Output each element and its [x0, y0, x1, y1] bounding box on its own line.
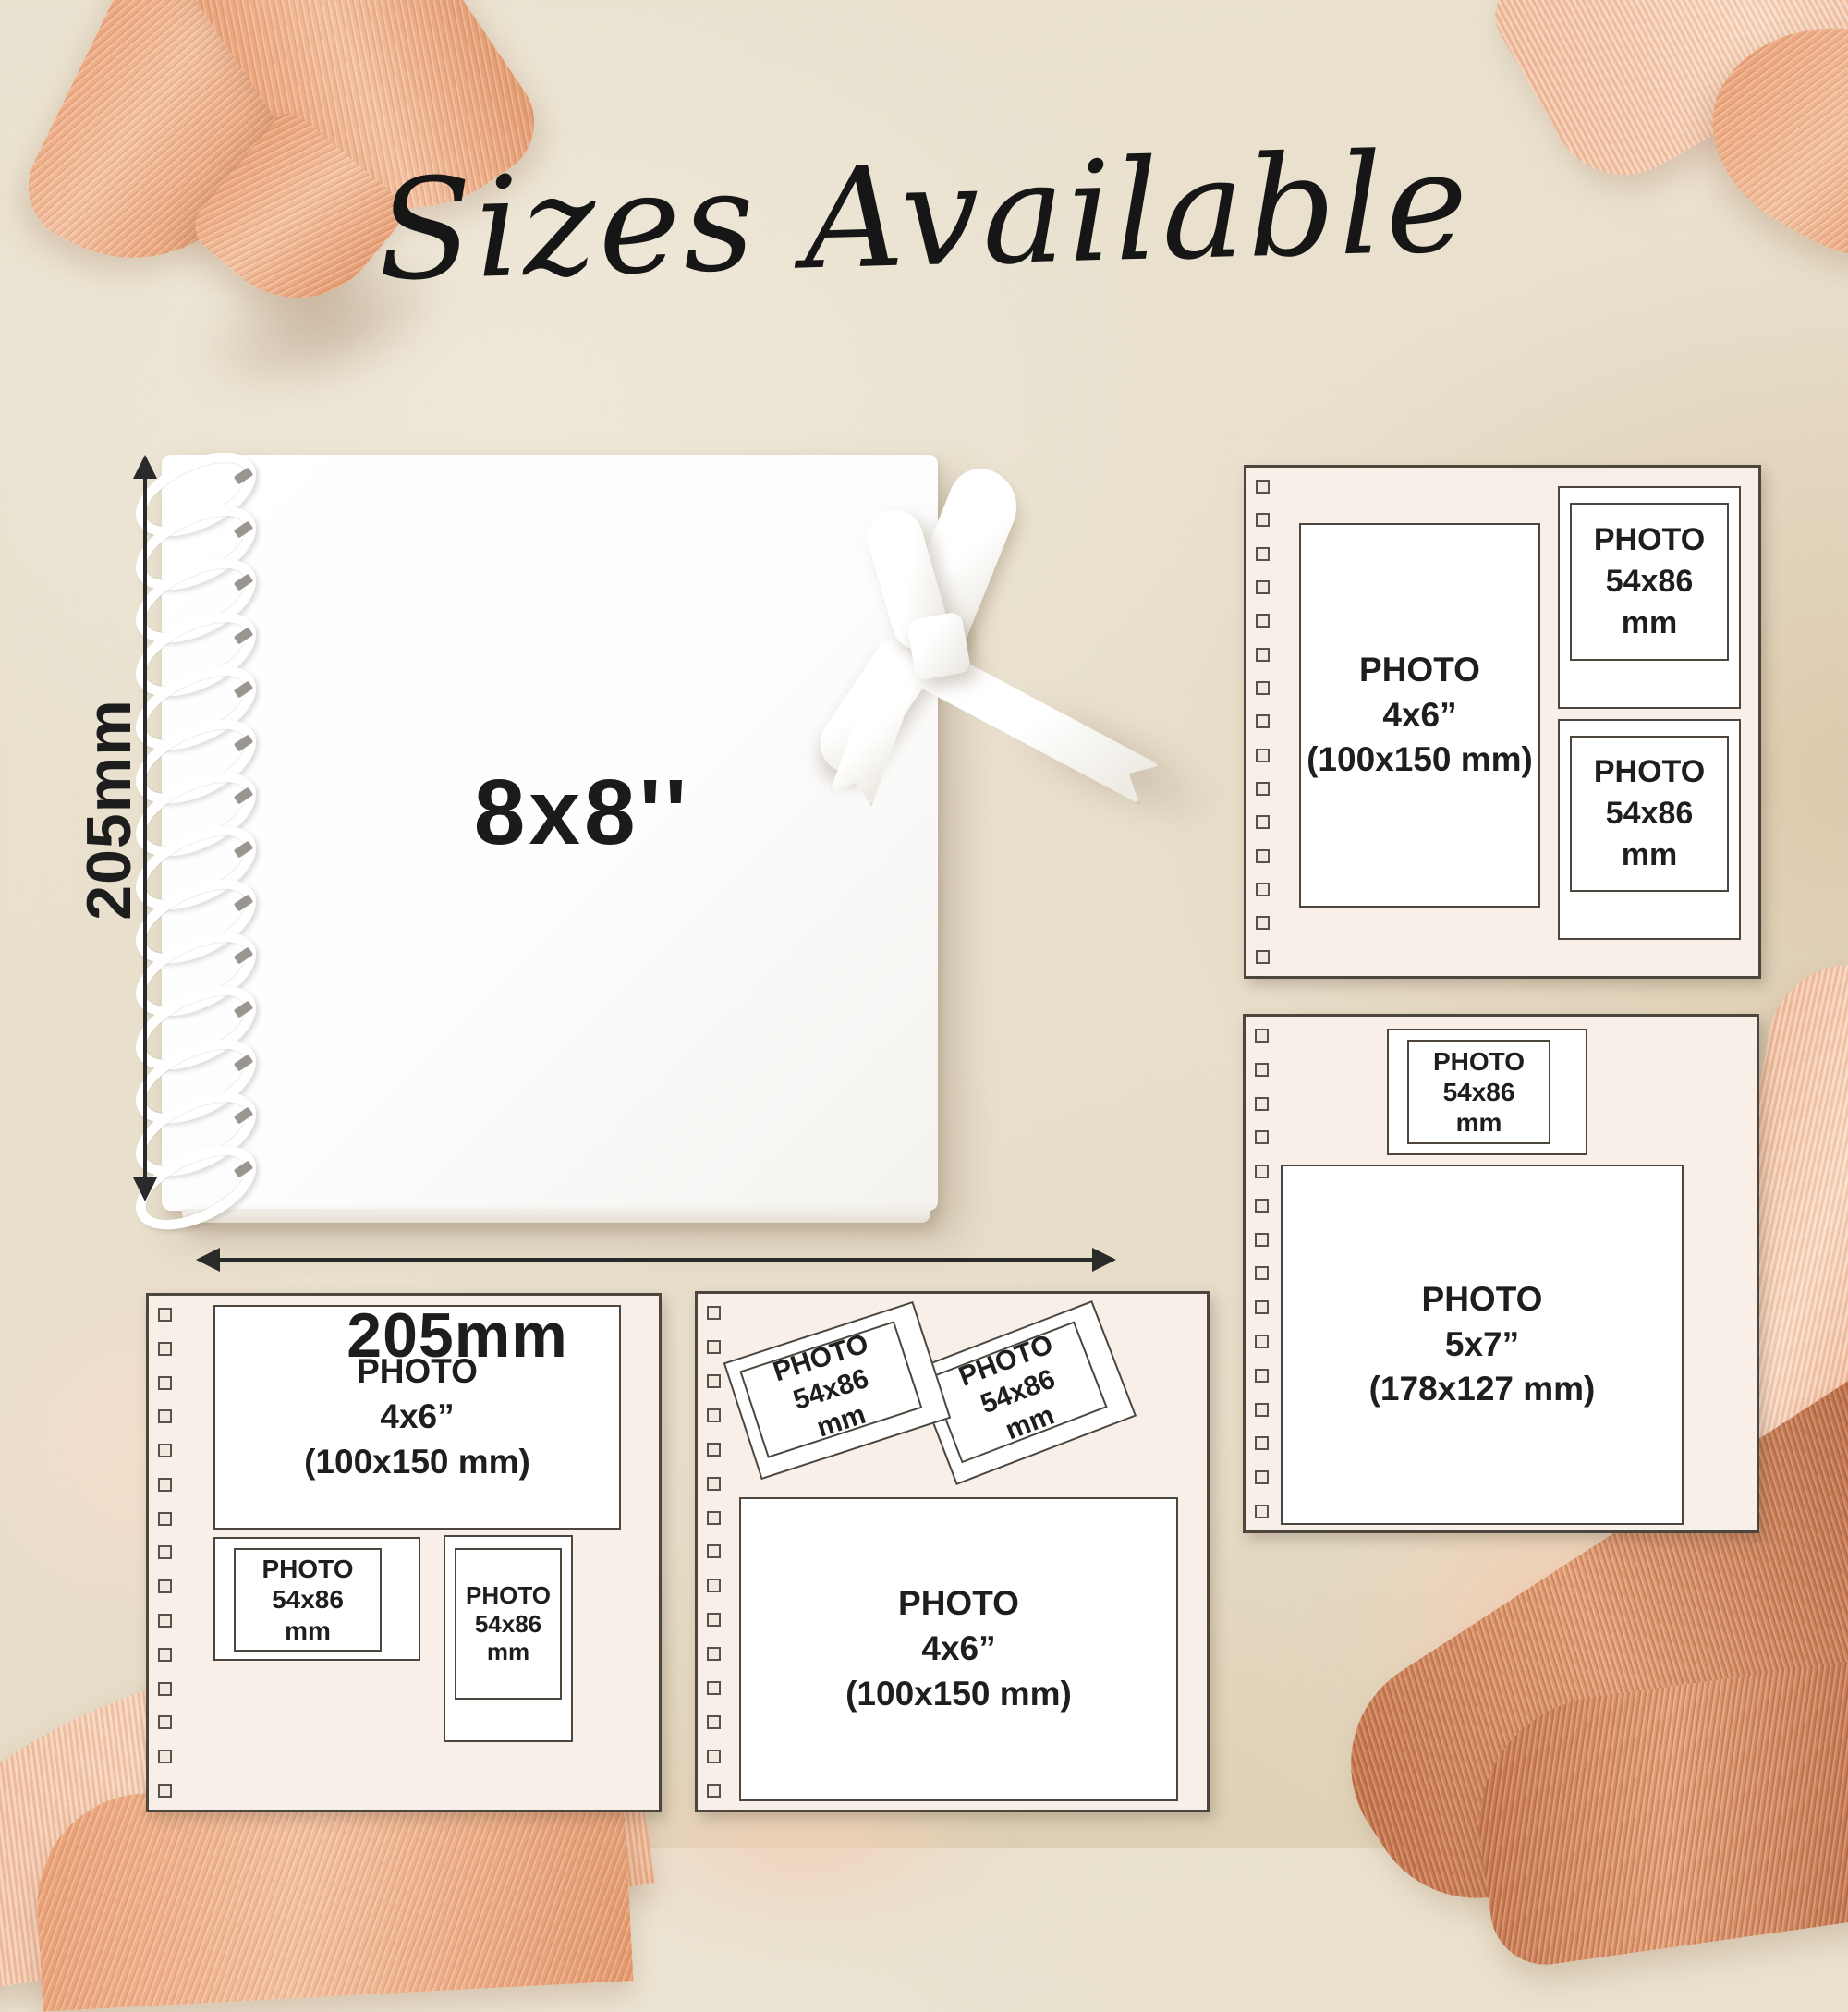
album-page-top-right: PHOTO 4x6” (100x150 mm) PHOTO 54x86 mm P…: [1244, 465, 1761, 979]
punch-hole: [158, 1614, 172, 1628]
punch-hole: [707, 1374, 721, 1388]
photo-slot-label: PHOTO 54x86 mm: [1594, 751, 1705, 876]
photo-slot-inner-frame: PHOTO 54x86 mm: [1407, 1040, 1550, 1144]
punch-hole: [707, 1715, 721, 1729]
punch-hole: [707, 1340, 721, 1354]
punch-hole: [1255, 1130, 1269, 1144]
punch-hole: [707, 1544, 721, 1558]
punch-hole: [1255, 1266, 1269, 1280]
punch-hole: [1256, 580, 1270, 594]
photo-slot-54x86: PHOTO 54x86 mm: [1558, 486, 1741, 709]
punch-hole: [1256, 883, 1270, 896]
album-page-bottom-left: PHOTO 4x6” (100x150 mm) PHOTO 54x86 mm P…: [146, 1293, 662, 1812]
punch-hole: [1256, 782, 1270, 796]
punch-hole: [158, 1579, 172, 1593]
punch-hole: [707, 1306, 721, 1320]
arrowhead-right-icon: [1092, 1248, 1116, 1272]
punch-hole: [1255, 1300, 1269, 1314]
punch-hole: [1255, 1165, 1269, 1178]
punch-hole: [1256, 480, 1270, 494]
punch-hole: [1256, 749, 1270, 762]
punch-hole: [707, 1511, 721, 1525]
punch-hole: [158, 1682, 172, 1696]
photo-slot-54x86: PHOTO 54x86 mm: [444, 1535, 573, 1742]
arrowhead-left-icon: [196, 1248, 220, 1272]
photo-slot-label: PHOTO 54x86 mm: [261, 1554, 353, 1645]
arrowhead-up-icon: [133, 455, 157, 479]
punch-hole: [158, 1342, 172, 1356]
punch-hole: [158, 1784, 172, 1798]
ribbon-tail-shadow: [941, 641, 1276, 884]
punch-hole: [1255, 1505, 1269, 1518]
photo-slot-inner-frame: PHOTO 54x86 mm: [455, 1548, 562, 1700]
punch-hole: [158, 1409, 172, 1423]
photo-slot-54x86: PHOTO 54x86 mm: [1387, 1029, 1587, 1155]
photo-slot-label: PHOTO 54x86 mm: [466, 1581, 551, 1666]
spiral-binding: [131, 460, 279, 1211]
punch-hole: [707, 1477, 721, 1491]
photo-slot-inner-frame: PHOTO 54x86 mm: [1570, 736, 1729, 892]
punch-hole: [1256, 547, 1270, 561]
punch-hole: [1255, 1436, 1269, 1450]
punch-hole: [158, 1512, 172, 1526]
punch-hole: [1256, 815, 1270, 829]
punch-hole: [158, 1715, 172, 1729]
punch-hole: [707, 1784, 721, 1798]
album-page-bottom-middle: PHOTO 54x86 mm PHOTO 54x86 mm PHOTO 4x6”…: [695, 1291, 1210, 1812]
photo-slot-label: PHOTO 54x86 mm: [954, 1328, 1082, 1457]
punch-hole: [1256, 714, 1270, 728]
punch-hole: [1255, 1403, 1269, 1417]
punch-hole: [1255, 1029, 1269, 1043]
photo-slot-label: PHOTO 54x86 mm: [769, 1327, 893, 1453]
punch-hole: [1255, 1063, 1269, 1077]
punch-hole: [1256, 513, 1270, 527]
punch-hole: [707, 1408, 721, 1422]
punch-hole: [158, 1478, 172, 1492]
punch-hole-column: [707, 1306, 725, 1798]
punch-hole-column: [1255, 1029, 1273, 1518]
photo-slot-label: PHOTO 54x86 mm: [1594, 519, 1705, 644]
photo-slot-5x7: PHOTO 5x7” (178x127 mm): [1281, 1165, 1684, 1525]
punch-hole-column: [158, 1308, 176, 1798]
photo-slot-label: PHOTO 5x7” (178x127 mm): [1369, 1277, 1596, 1412]
punch-hole: [158, 1545, 172, 1559]
punch-hole: [1256, 648, 1270, 662]
width-label: 205mm: [310, 1299, 605, 1368]
punch-hole: [1256, 681, 1270, 695]
photo-slot-label: PHOTO 54x86 mm: [1433, 1046, 1525, 1138]
height-label: 205mm: [73, 662, 141, 957]
punch-hole: [707, 1443, 721, 1457]
punch-hole: [707, 1750, 721, 1763]
photo-slot-inner-frame: PHOTO 54x86 mm: [739, 1321, 922, 1458]
photo-slot-54x86-tilted: PHOTO 54x86 mm: [912, 1300, 1137, 1485]
photo-slot-4x6: PHOTO 4x6” (100x150 mm): [739, 1497, 1178, 1801]
punch-hole: [158, 1648, 172, 1662]
photo-slot-54x86: PHOTO 54x86 mm: [213, 1537, 420, 1661]
photo-slot-label: PHOTO 4x6” (100x150 mm): [845, 1581, 1072, 1716]
punch-hole-column: [1256, 480, 1274, 964]
photo-slot-inner-frame: PHOTO 54x86 mm: [1570, 503, 1729, 661]
punch-hole: [707, 1681, 721, 1695]
punch-hole: [1255, 1233, 1269, 1247]
photo-slot-4x6: PHOTO 4x6” (100x150 mm): [1299, 523, 1540, 908]
photo-slot-54x86: PHOTO 54x86 mm: [1558, 719, 1741, 940]
punch-hole: [1256, 950, 1270, 964]
punch-hole: [707, 1647, 721, 1661]
punch-hole: [158, 1444, 172, 1457]
punch-hole: [1256, 614, 1270, 628]
punch-hole: [1255, 1369, 1269, 1383]
punch-hole: [158, 1308, 172, 1322]
dimension-arrow-horizontal: [201, 1258, 1113, 1262]
punch-hole: [158, 1750, 172, 1763]
photo-slot-inner-frame: PHOTO 54x86 mm: [234, 1548, 382, 1652]
punch-hole: [158, 1376, 172, 1390]
punch-hole: [1255, 1097, 1269, 1111]
punch-hole: [707, 1613, 721, 1627]
punch-hole: [1255, 1199, 1269, 1213]
arrowhead-down-icon: [133, 1177, 157, 1201]
photo-slot-label: PHOTO 4x6” (100x150 mm): [1307, 648, 1533, 783]
punch-hole: [1255, 1470, 1269, 1484]
punch-hole: [1256, 849, 1270, 863]
punch-hole: [1256, 916, 1270, 930]
photo-slot-inner-frame: PHOTO 54x86 mm: [929, 1321, 1108, 1463]
album-page-middle-right: PHOTO 54x86 mm PHOTO 5x7” (178x127 mm): [1243, 1014, 1759, 1533]
punch-hole: [707, 1579, 721, 1592]
punch-hole: [1255, 1335, 1269, 1348]
photo-slot-54x86-tilted: PHOTO 54x86 mm: [723, 1301, 952, 1480]
